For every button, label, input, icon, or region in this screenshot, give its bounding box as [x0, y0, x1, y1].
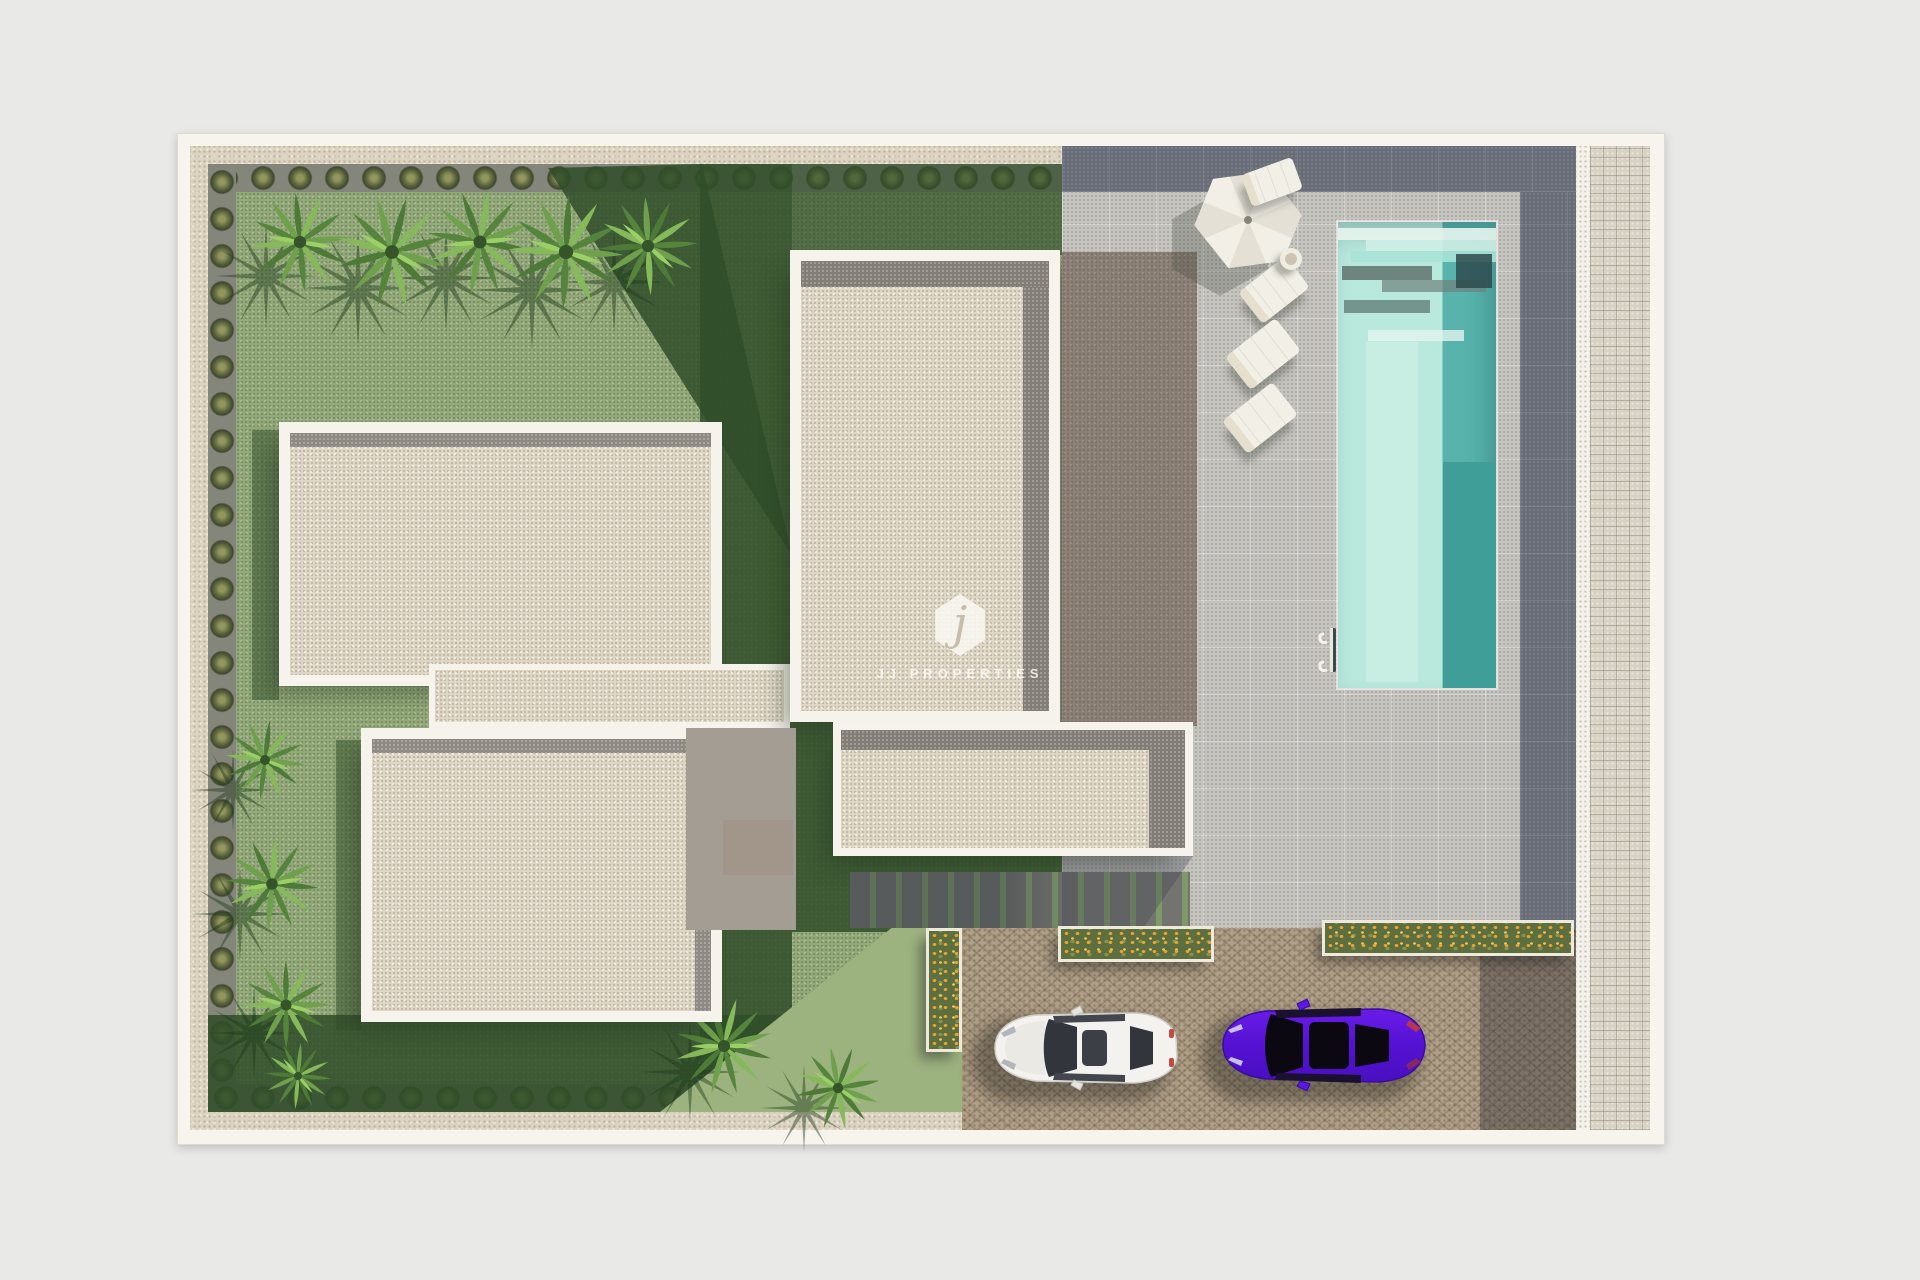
pool-water-teal: [1443, 462, 1496, 688]
boundary-wall: [1576, 146, 1590, 1130]
purple-car: [1213, 998, 1437, 1093]
side-table: [1280, 248, 1302, 270]
pool-reflection: [1456, 254, 1492, 288]
pool-ladder-icon: [1318, 620, 1354, 678]
roof-gravel: [290, 433, 711, 675]
watermark-logo-letter: j: [953, 600, 967, 646]
roof-shade-band: [801, 261, 1049, 287]
roof-bottom-left: [361, 728, 722, 1022]
upper-deck-strip: [1062, 252, 1197, 726]
site-plan-rendering: j JJ PROPERTIES: [0, 0, 1920, 1280]
flower-planter-vertical: [926, 928, 962, 1052]
roof-shade-band: [372, 739, 711, 753]
umbrella-pole: [1243, 215, 1253, 225]
pool-water-streak: [1366, 342, 1418, 682]
roof-gravel: [435, 670, 784, 722]
swimming-pool: [1338, 222, 1496, 688]
pool-deck-band-right: [1520, 192, 1576, 930]
pool-reflection: [1344, 300, 1430, 313]
roof-lower-center: [833, 722, 1193, 856]
flower-planter-center: [1058, 926, 1214, 962]
roof-connector: [429, 664, 790, 728]
roof-shade-band: [1023, 287, 1049, 711]
pool-step: [1366, 240, 1496, 251]
roof-top-left: [279, 422, 722, 686]
side-patio-square: [723, 820, 793, 875]
driveway-shadow: [1480, 928, 1576, 1130]
pool-step: [1338, 228, 1496, 240]
roof-gravel: [372, 739, 711, 1011]
roof-shade-band: [841, 730, 1185, 750]
roof-gravel: [801, 261, 1049, 711]
roof-shade-band: [290, 433, 711, 447]
cobblestone-sidewalk: [1590, 146, 1650, 1130]
flower-planter-right: [1322, 920, 1574, 956]
pool-deck-band-top: [1062, 146, 1576, 192]
pool-reflection: [1368, 330, 1464, 341]
pool-reflection: [1342, 266, 1432, 280]
table-top: [1285, 253, 1297, 265]
watermark-brand: JJ PROPERTIES: [780, 666, 1140, 681]
white-car: [983, 1003, 1187, 1093]
roof-shade-band: [1149, 750, 1185, 848]
roof-main: [790, 250, 1060, 722]
